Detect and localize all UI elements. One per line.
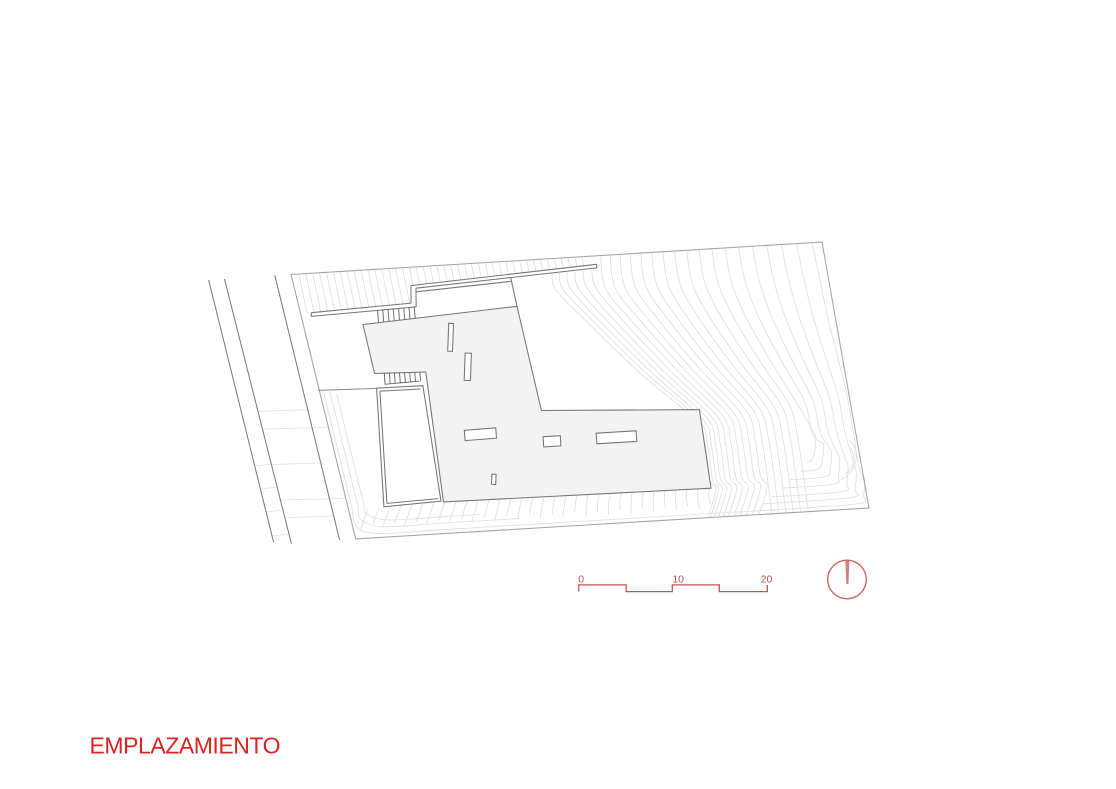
svg-text:EMPLAZAMIENTO: EMPLAZAMIENTO (90, 733, 281, 759)
svg-text:20: 20 (761, 573, 773, 585)
svg-text:10: 10 (672, 573, 684, 585)
svg-text:0: 0 (578, 573, 584, 585)
